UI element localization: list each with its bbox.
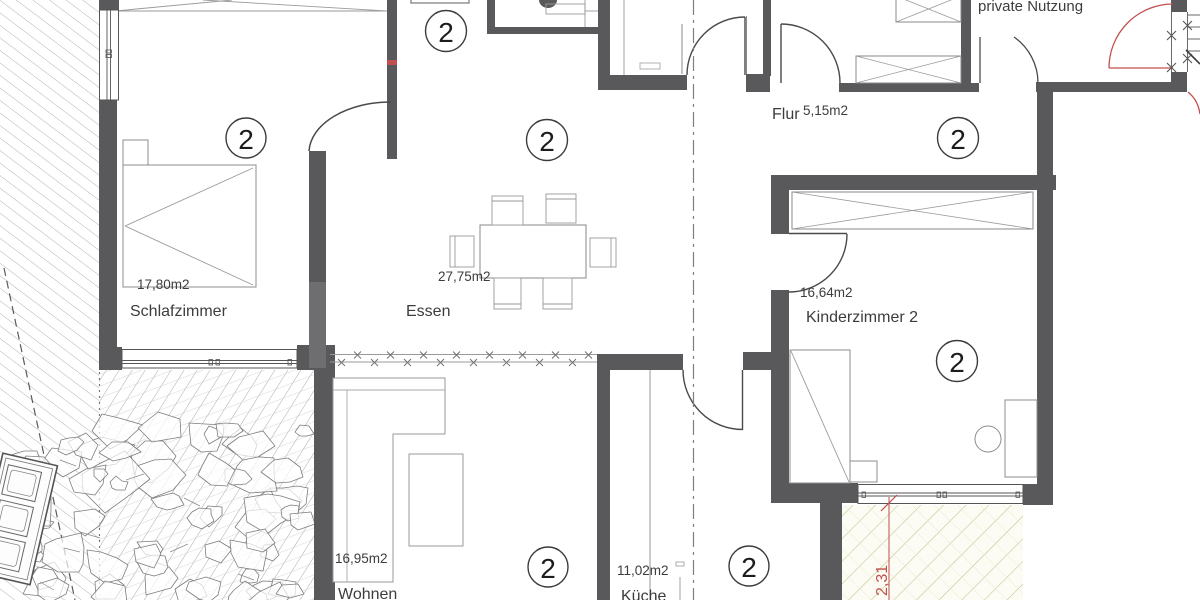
svg-text:2: 2 bbox=[539, 126, 555, 157]
svg-text:27,75m2: 27,75m2 bbox=[438, 269, 491, 284]
svg-text:Flur: Flur bbox=[772, 106, 800, 123]
svg-text:Wohnen: Wohnen bbox=[338, 586, 397, 600]
svg-text:Schlafzimmer: Schlafzimmer bbox=[130, 303, 228, 320]
svg-text:2: 2 bbox=[950, 124, 966, 155]
svg-text:Küche: Küche bbox=[621, 588, 666, 600]
svg-text:2: 2 bbox=[540, 553, 556, 584]
svg-text:Essen: Essen bbox=[406, 303, 450, 320]
svg-text:11,02m2: 11,02m2 bbox=[617, 563, 669, 578]
svg-text:16,64m2: 16,64m2 bbox=[800, 285, 853, 300]
svg-text:2: 2 bbox=[438, 17, 454, 48]
svg-text:2,31: 2,31 bbox=[874, 565, 891, 596]
svg-text:private Nutzung: private Nutzung bbox=[978, 0, 1083, 15]
svg-text:Kinderzimmer 2: Kinderzimmer 2 bbox=[806, 309, 918, 326]
svg-text:17,80m2: 17,80m2 bbox=[137, 277, 190, 292]
svg-text:2: 2 bbox=[741, 552, 757, 583]
svg-text:16,95m2: 16,95m2 bbox=[335, 551, 388, 566]
svg-text:5,15m2: 5,15m2 bbox=[803, 103, 848, 118]
svg-text:2: 2 bbox=[949, 347, 965, 378]
svg-text:2: 2 bbox=[238, 124, 254, 155]
